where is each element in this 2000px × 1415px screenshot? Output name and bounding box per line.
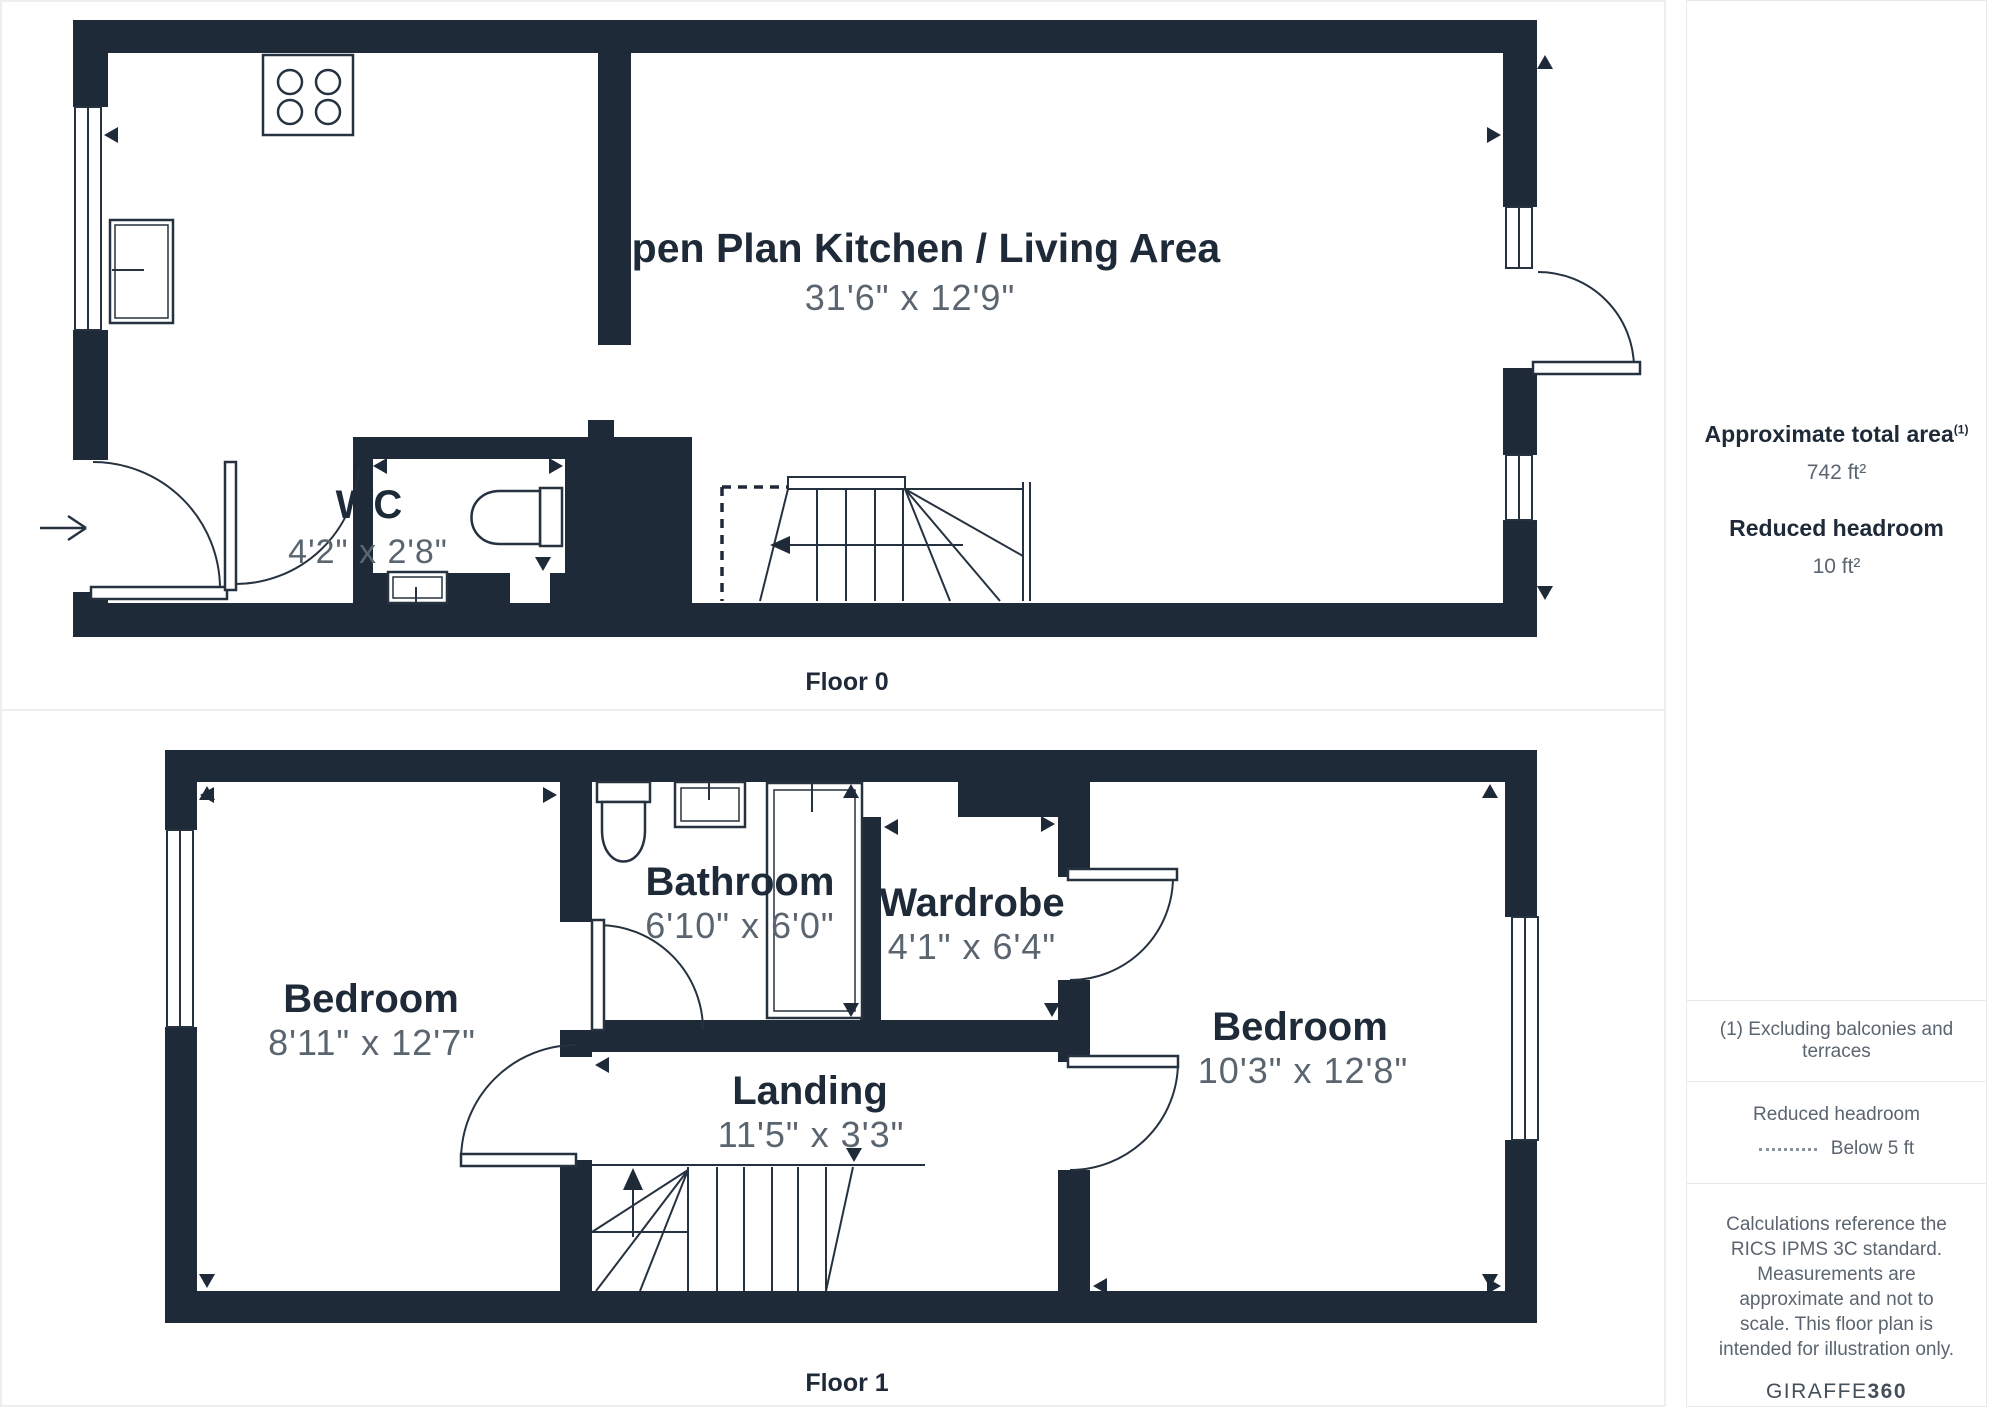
- disclaimer-section: Calculations reference the RICS IPMS 3C …: [1687, 1183, 1986, 1406]
- toilet-icon: [472, 488, 563, 546]
- total-area-label: Approximate total area(1): [1705, 421, 1969, 448]
- window: [1506, 207, 1532, 268]
- window: [167, 830, 193, 1027]
- floor0-label: Floor 0: [805, 668, 888, 696]
- floor1-plan: Bedroom 8'11" x 12'7" Bathroom 6'10" x 6…: [165, 750, 1538, 1397]
- room-dims: 6'10" x 6'0": [645, 905, 834, 946]
- floorplan-page: Open Plan Kitchen / Living Area 31'6" x …: [0, 0, 2000, 1415]
- footnote-section: (1) Excluding balconies and terraces: [1687, 1000, 1986, 1081]
- reduced-headroom-label: Reduced headroom: [1729, 515, 1944, 542]
- wardrobe-door: [1068, 869, 1177, 980]
- floorplan-canvas: Open Plan Kitchen / Living Area 31'6" x …: [0, 0, 1666, 1408]
- room-label: Landing: [732, 1069, 888, 1113]
- floor0-windows: [75, 107, 1532, 520]
- room-label: WC: [336, 483, 403, 527]
- room-dims: 4'2" x 2'8": [288, 533, 448, 571]
- front-door: [91, 462, 227, 599]
- appliance-icon: [110, 220, 173, 323]
- sink-icon: [388, 572, 447, 603]
- floor0-plan: Open Plan Kitchen / Living Area 31'6" x …: [40, 20, 1640, 696]
- footnote-ref: (1): [1954, 423, 1969, 437]
- bedroom1-door: [461, 1045, 576, 1166]
- floor1-label: Floor 1: [805, 1369, 888, 1397]
- room-dims: 31'6" x 12'9": [805, 277, 1015, 318]
- giraffe360-logo: GIRAFFE360: [1766, 1378, 1907, 1406]
- room-dims: 11'5" x 3'3": [718, 1114, 905, 1155]
- window: [75, 107, 101, 330]
- toilet-icon: [597, 782, 650, 862]
- room-dims: 4'1" x 6'4": [888, 926, 1056, 967]
- disclaimer-text: Calculations reference the RICS IPMS 3C …: [1713, 1212, 1960, 1362]
- stairs-floor0: [760, 477, 1030, 601]
- panel-borders: [0, 0, 1665, 1407]
- room-label: Bedroom: [283, 977, 459, 1021]
- side-entry-door: [1533, 272, 1640, 374]
- sink-icon: [675, 782, 745, 827]
- room-label: Open Plan Kitchen / Living Area: [600, 225, 1222, 271]
- window: [1512, 917, 1538, 1140]
- footnote-text: (1) Excluding balconies and terraces: [1687, 1019, 1986, 1063]
- entrance-arrow-icon: [40, 516, 86, 540]
- floor0-dimension-arrows: [104, 55, 1553, 600]
- stove-icon: [263, 55, 353, 135]
- room-label: Wardrobe: [879, 881, 1064, 925]
- dotted-line-icon: [1759, 1148, 1817, 1151]
- legend-section: Reduced headroom Below 5 ft: [1687, 1081, 1986, 1183]
- room-label: Bedroom: [1212, 1005, 1388, 1049]
- reduced-headroom-value: 10 ft²: [1813, 555, 1861, 579]
- legend-value: Below 5 ft: [1831, 1138, 1914, 1160]
- total-area-value: 742 ft²: [1807, 461, 1867, 485]
- bedroom2-door: [1068, 1056, 1178, 1170]
- room-label: Bathroom: [646, 860, 835, 904]
- room-dims: 10'3" x 12'8": [1198, 1050, 1408, 1091]
- info-sidebar: Approximate total area(1) 742 ft² Reduce…: [1686, 0, 1987, 1407]
- stairs-floor1: [592, 1165, 925, 1291]
- area-summary: Approximate total area(1) 742 ft² Reduce…: [1687, 1, 1986, 1000]
- window: [1506, 455, 1532, 520]
- room-dims: 8'11" x 12'7": [268, 1022, 476, 1063]
- legend-label: Reduced headroom: [1753, 1104, 1920, 1126]
